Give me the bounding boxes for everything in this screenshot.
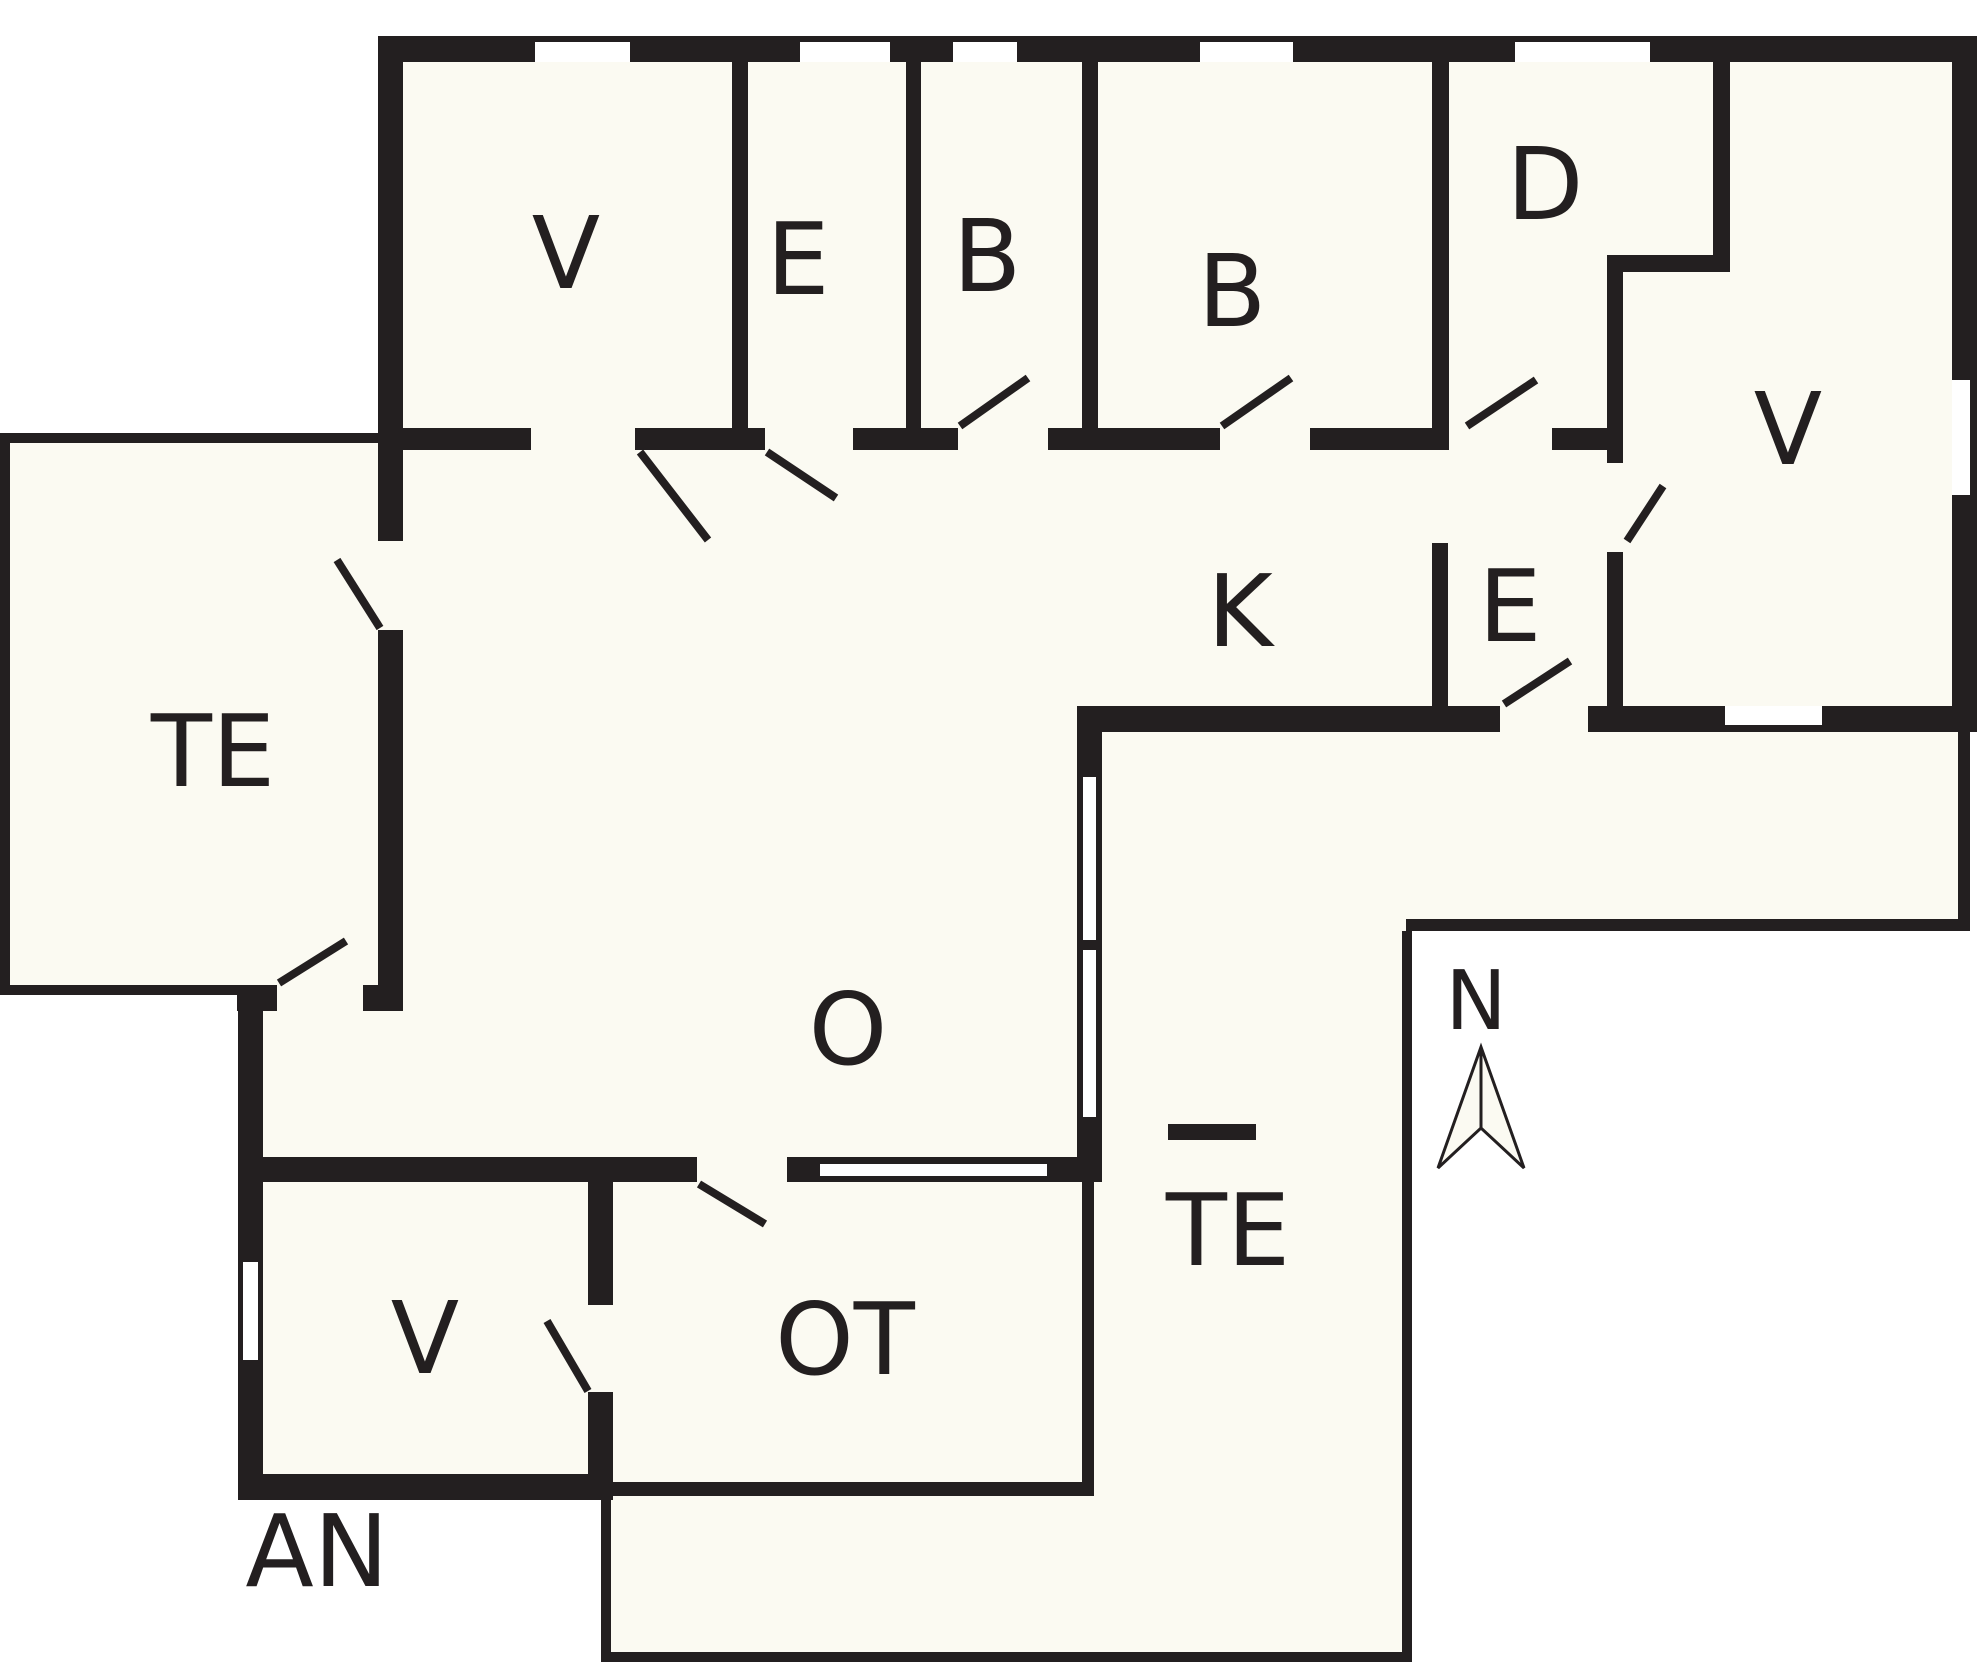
- window-top-5: [1515, 42, 1650, 62]
- fireplace-bar: [1168, 1124, 1256, 1140]
- wall-annex-east-lower: [588, 1392, 613, 1497]
- wall-west-jog-right: [363, 985, 403, 1011]
- wall-rooms-south-2: [635, 428, 765, 450]
- te-se-outline-left: [601, 1496, 611, 1662]
- room-label-v-right: V: [1754, 371, 1822, 488]
- wall-o-south-left: [240, 1157, 697, 1182]
- room-label-b-2: B: [1198, 233, 1267, 350]
- wall-k-e: [1432, 543, 1448, 706]
- window-ot-east-1: [1083, 777, 1096, 940]
- floor-plan-drawing: VEBBDVKETEOTEVOTANN: [0, 0, 1980, 1667]
- te-west-outline-left: [0, 433, 10, 995]
- room-label-k: K: [1207, 553, 1275, 670]
- north-label: N: [1445, 954, 1506, 1049]
- window-top-4: [1200, 42, 1293, 62]
- window-top-2: [800, 42, 890, 62]
- wall-west-upper: [378, 36, 403, 541]
- wall-rooms-south-6: [1552, 428, 1607, 450]
- wall-ot-east-lower: [1082, 1182, 1094, 1496]
- room-label-v-annex: V: [391, 1280, 459, 1397]
- room-label-te-southeast: TE: [1165, 1172, 1290, 1289]
- wall-d-step-north: [1713, 62, 1730, 272]
- wall-west-lower: [378, 630, 403, 1011]
- room-label-te-west: TE: [150, 693, 275, 810]
- room-label-an: AN: [245, 1493, 388, 1610]
- room-label-v-top-left: V: [532, 195, 600, 312]
- wall-porch-east: [1958, 732, 1970, 931]
- wall-e-b: [906, 62, 921, 433]
- wall-b-d: [1432, 62, 1449, 450]
- wall-annex-west: [238, 985, 263, 1500]
- te-west-outline-top: [0, 433, 378, 443]
- wall-b-b: [1082, 62, 1098, 433]
- fill-te-se-bottom: [601, 1496, 1412, 1662]
- fill-o: [403, 445, 1102, 1182]
- wall-d-step-south: [1607, 272, 1623, 463]
- te-se-outline-bottom: [601, 1652, 1412, 1662]
- room-label-b-1: B: [953, 198, 1022, 315]
- fill-o-west-bump: [263, 985, 403, 1182]
- floor-plan-page: VEBBDVKETEOTEVOTANN: [0, 0, 1980, 1667]
- window-east: [1952, 380, 1970, 495]
- wall-rooms-south-5: [1310, 428, 1432, 450]
- window-o-south: [820, 1164, 1047, 1176]
- wall-rooms-south-1: [402, 428, 531, 450]
- window-top-1: [535, 42, 630, 62]
- window-top-3: [953, 42, 1017, 62]
- room-label-e-entry: E: [1478, 548, 1541, 665]
- wall-south-k: [1077, 706, 1500, 732]
- wall-rooms-south-4: [1048, 428, 1220, 450]
- window-south-vright: [1725, 706, 1822, 725]
- te-west-outline-bottom: [0, 985, 240, 995]
- room-label-ot: OT: [775, 1281, 916, 1398]
- te-se-outline-right: [1402, 931, 1412, 1662]
- wall-v-e: [732, 62, 748, 428]
- wall-rooms-south-3: [853, 428, 958, 450]
- wall-ot-south: [613, 1482, 1093, 1496]
- wall-e-v-lower: [1607, 552, 1623, 706]
- window-ot-east-2: [1083, 950, 1096, 1117]
- room-label-d: D: [1506, 126, 1583, 243]
- room-label-o: O: [809, 971, 888, 1088]
- fill-porch-band: [1412, 732, 1970, 931]
- room-label-e-top: E: [766, 201, 829, 318]
- wall-porch-south: [1406, 919, 1970, 931]
- wall-d-step-mid: [1607, 255, 1730, 272]
- window-annex-west: [243, 1262, 258, 1360]
